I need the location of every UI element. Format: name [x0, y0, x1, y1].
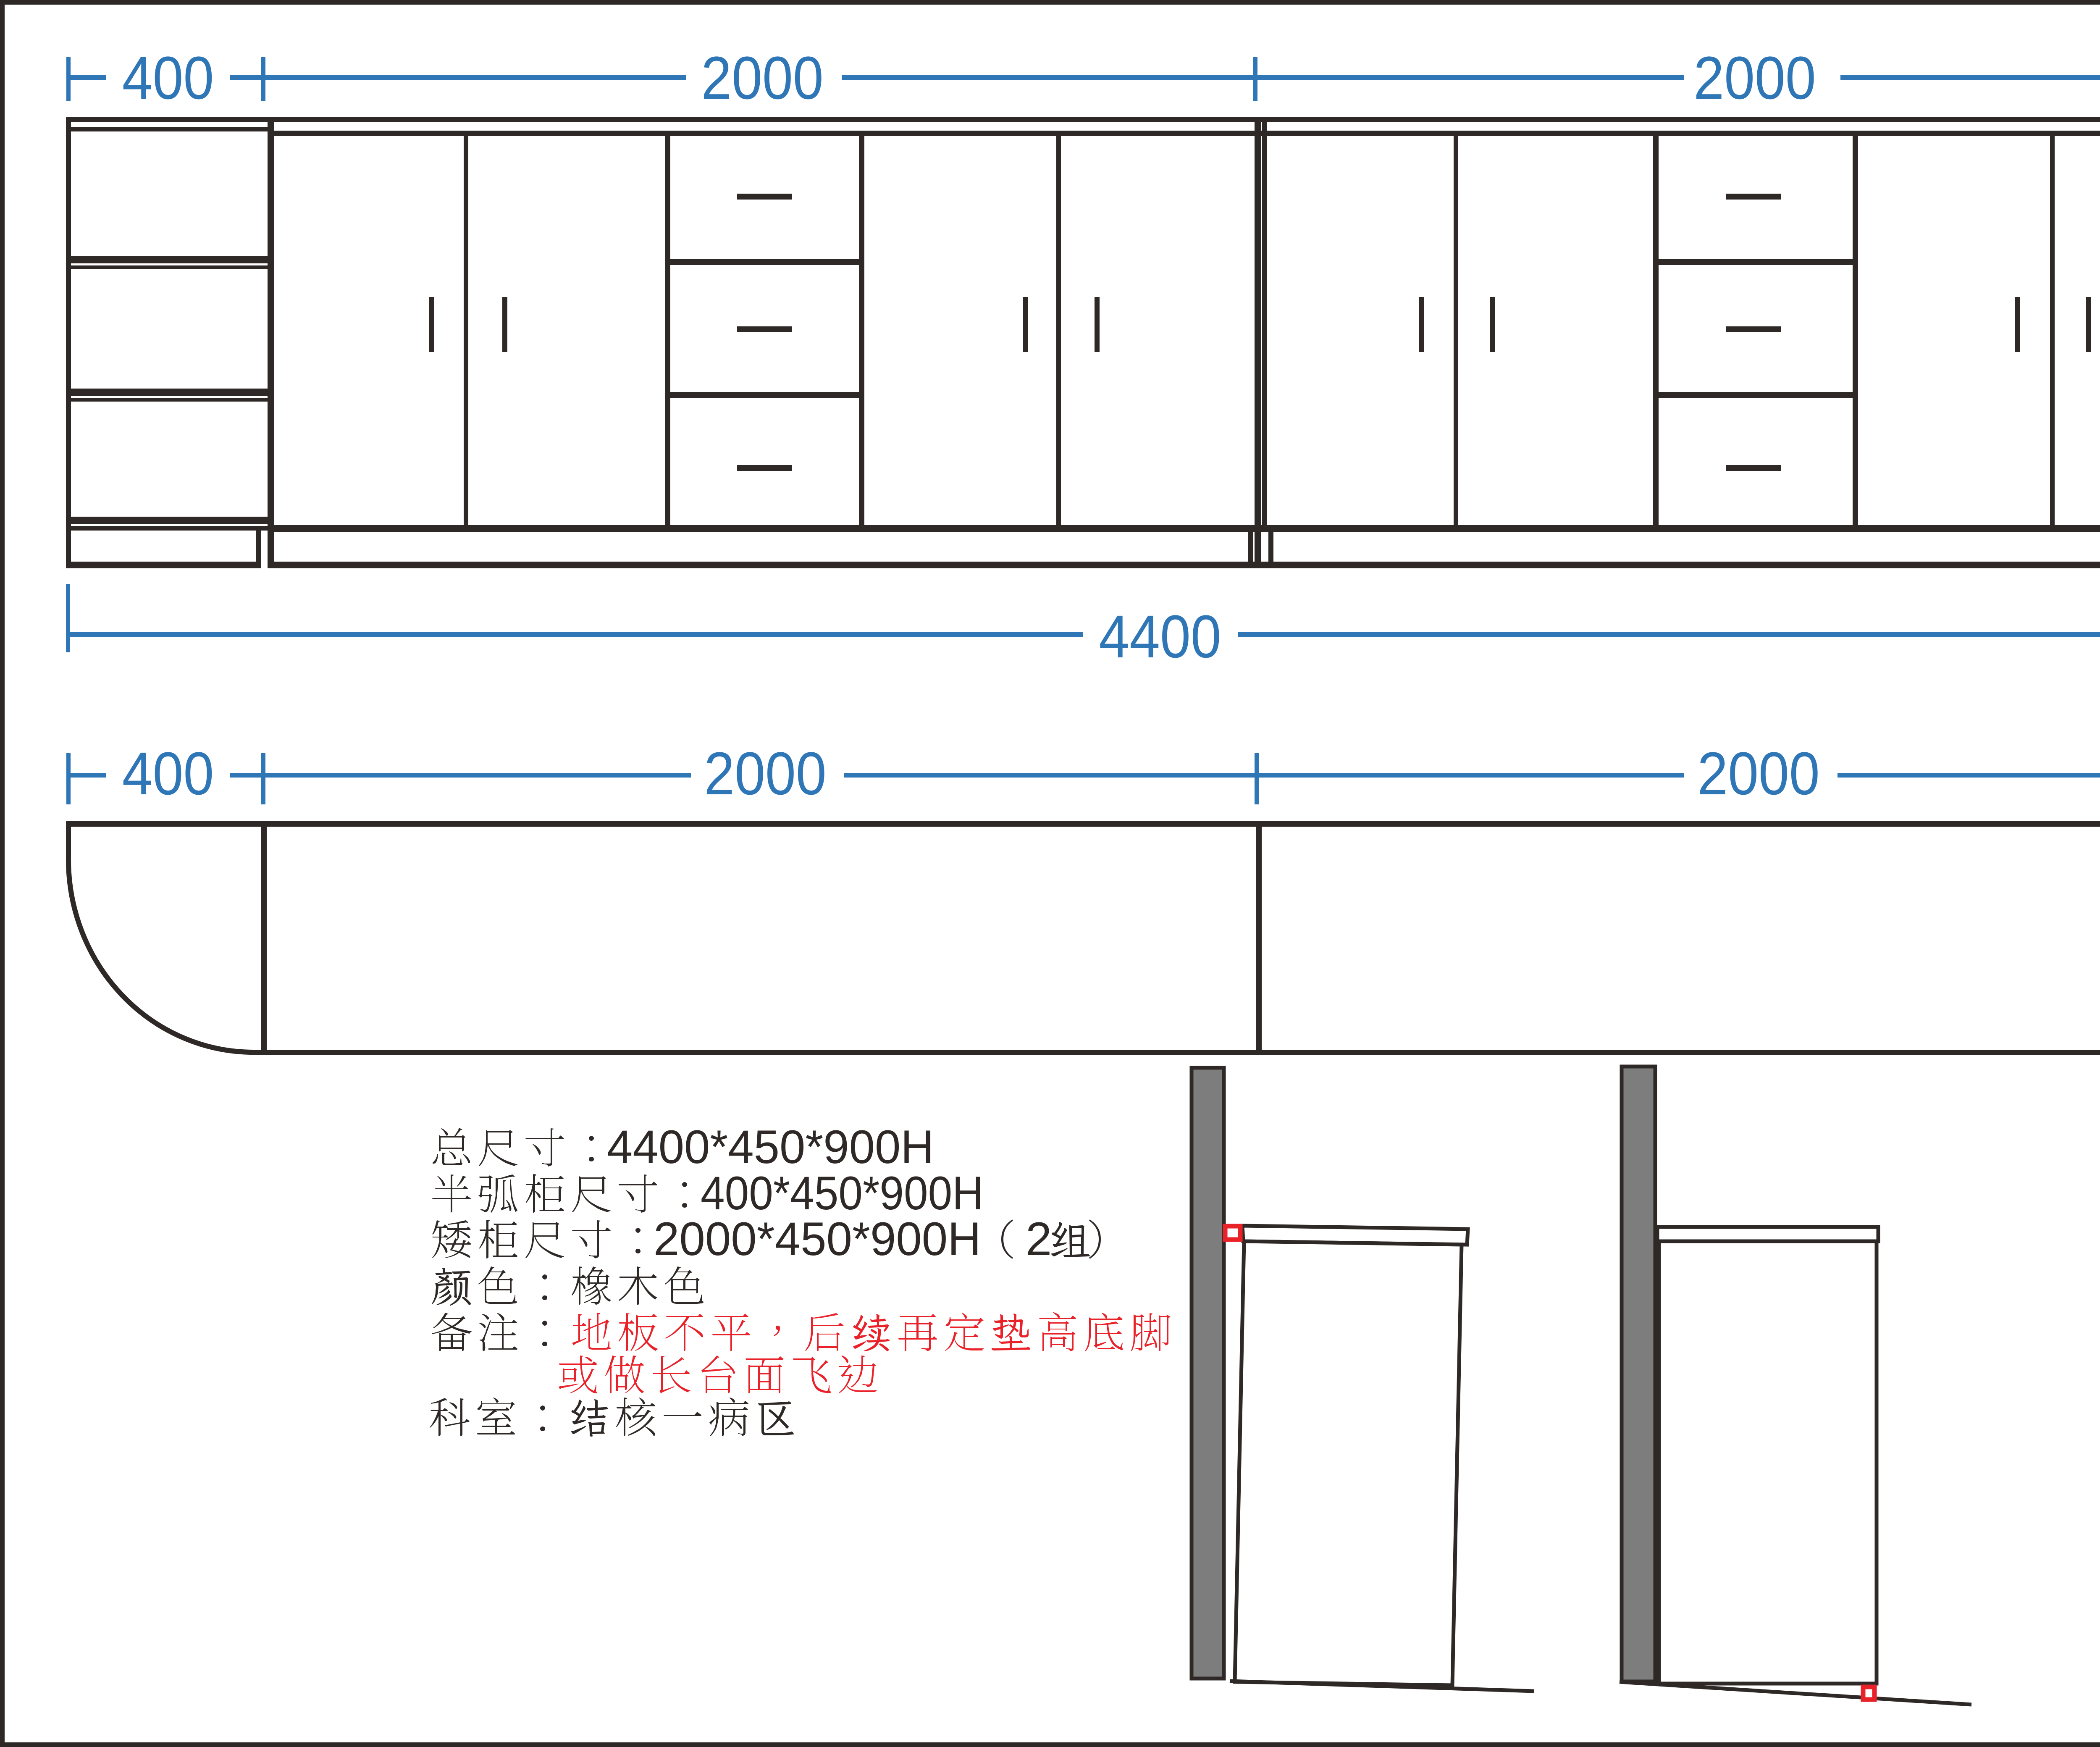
svg-text:2: 2: [1026, 1213, 1052, 1265]
svg-text:2000: 2000: [701, 44, 823, 112]
svg-text:400*450*900H: 400*450*900H: [701, 1167, 984, 1219]
svg-text:2000: 2000: [1697, 740, 1819, 807]
svg-text:4400*450*900H: 4400*450*900H: [607, 1121, 934, 1173]
svg-text:400: 400: [122, 740, 214, 807]
svg-text:4400: 4400: [1099, 603, 1221, 670]
svg-text:2000*450*900H: 2000*450*900H: [654, 1213, 981, 1265]
svg-text:2000: 2000: [704, 740, 826, 807]
svg-text:2000: 2000: [1693, 44, 1816, 112]
svg-text:400: 400: [122, 44, 214, 112]
